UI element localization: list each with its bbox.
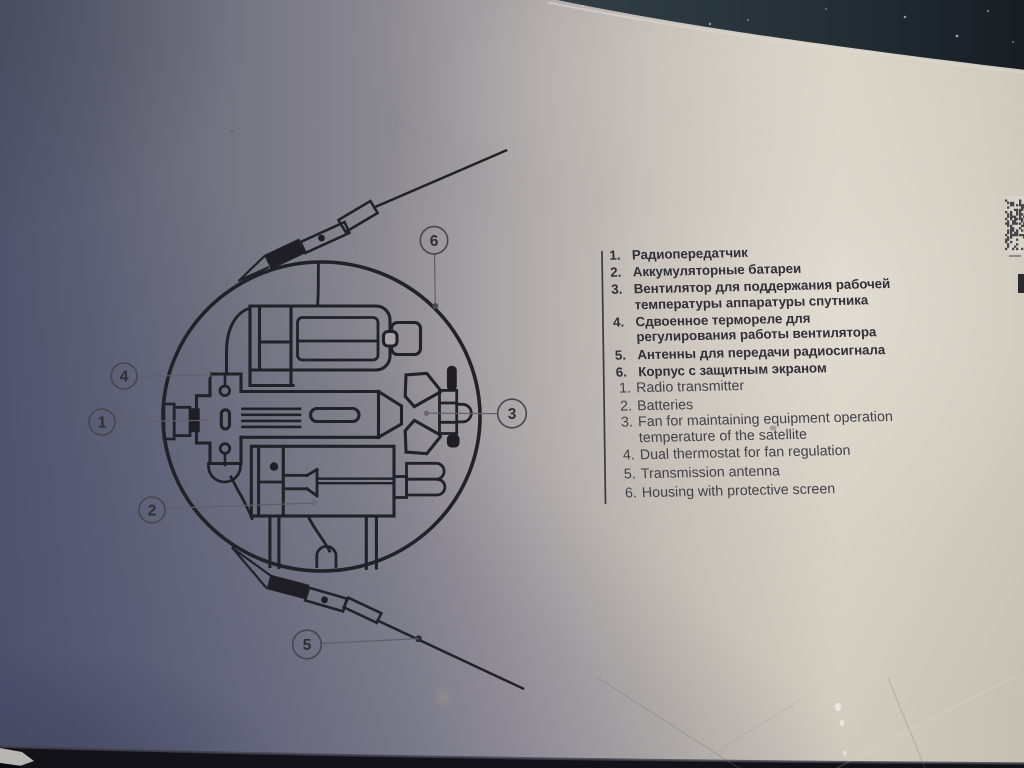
svg-text:6: 6 xyxy=(430,233,439,250)
svg-text:4: 4 xyxy=(120,369,129,386)
svg-text:3: 3 xyxy=(508,406,517,423)
svg-text:5: 5 xyxy=(303,637,312,654)
svg-text:2: 2 xyxy=(148,503,157,520)
svg-text:1: 1 xyxy=(98,415,107,432)
